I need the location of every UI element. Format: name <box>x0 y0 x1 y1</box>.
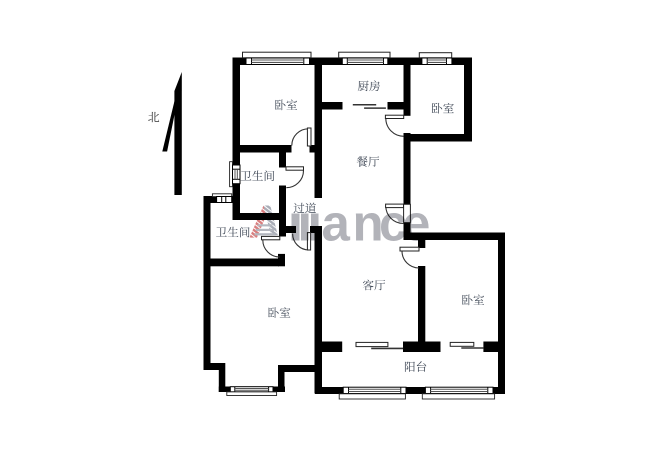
svg-text:a: a <box>322 195 351 252</box>
svg-text:e: e <box>402 195 430 252</box>
